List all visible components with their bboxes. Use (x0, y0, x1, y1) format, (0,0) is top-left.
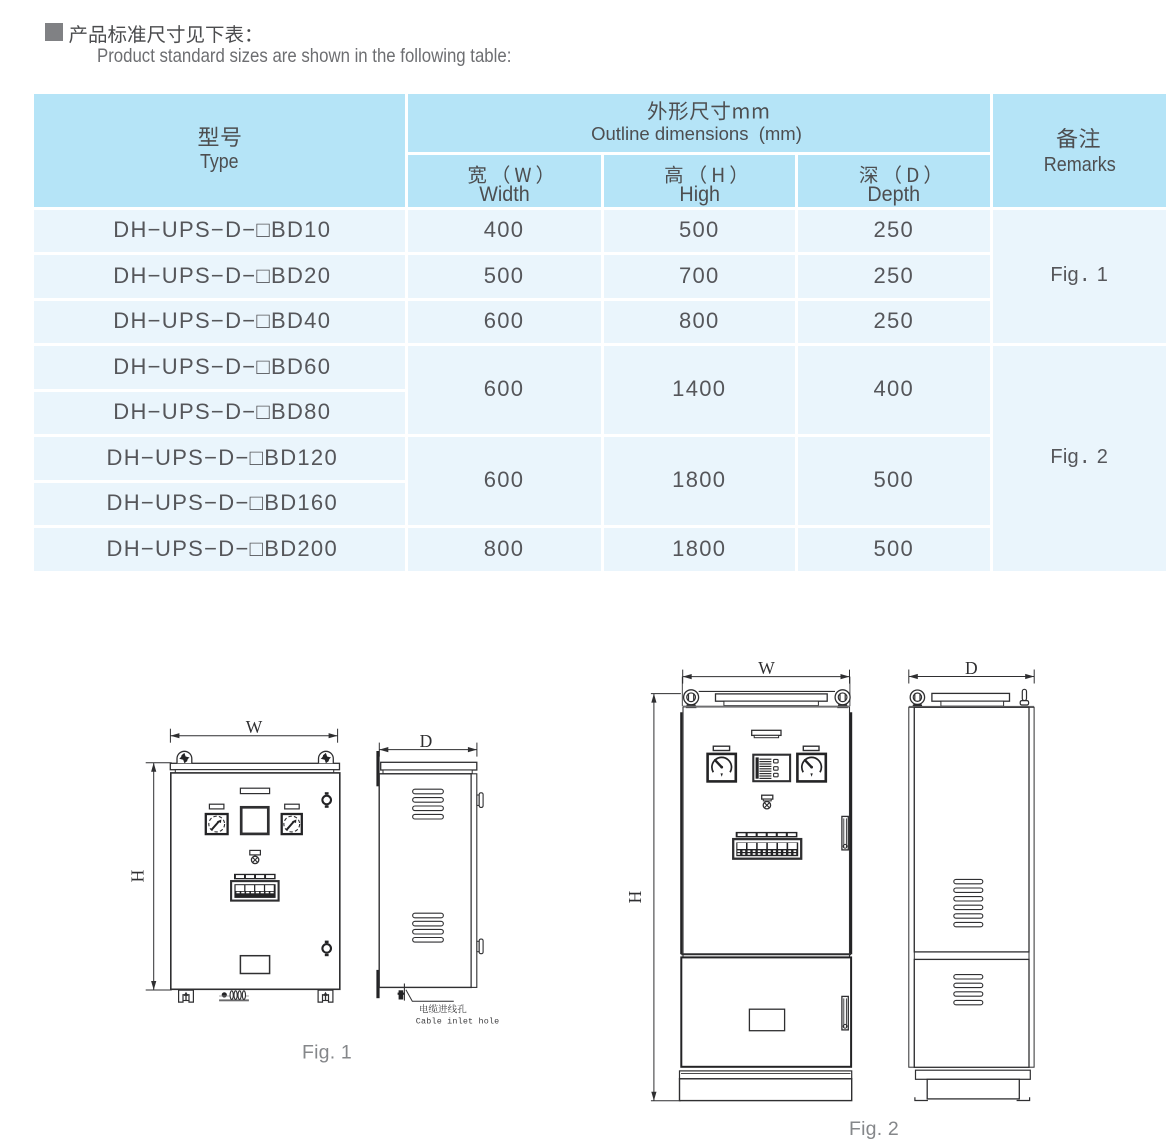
svg-text:Fig. 2: Fig. 2 (849, 1118, 899, 1140)
svg-text:D: D (965, 658, 978, 678)
svg-text:Fig. 1: Fig. 1 (302, 1042, 352, 1064)
svg-text:W: W (246, 717, 263, 737)
svg-text:H: H (625, 890, 645, 903)
svg-text:D: D (420, 731, 433, 751)
svg-text:W: W (758, 658, 775, 678)
svg-text:Cable inlet hole: Cable inlet hole (416, 1017, 500, 1027)
svg-text:H: H (128, 869, 148, 882)
